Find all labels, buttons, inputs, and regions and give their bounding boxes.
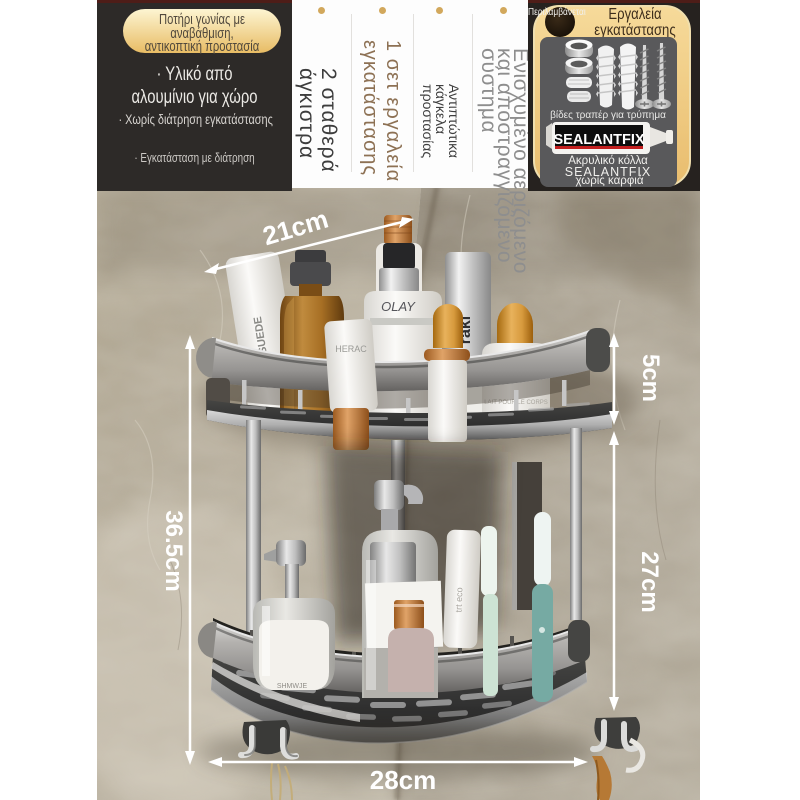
svg-text:trt eco: trt eco — [454, 587, 465, 612]
svg-text:28cm: 28cm — [370, 765, 437, 795]
svg-text:SEALANTFIX: SEALANTFIX — [553, 132, 644, 148]
svg-text:HERAC: HERAC — [335, 344, 367, 354]
svg-text:36.5cm: 36.5cm — [160, 510, 187, 591]
svg-text:OLAY: OLAY — [381, 299, 416, 314]
svg-text:5cm: 5cm — [637, 354, 664, 402]
svg-text:27cm: 27cm — [636, 551, 663, 612]
svg-text:SHMWJE: SHMWJE — [277, 683, 308, 690]
svg-text:βίδες τραπέρ για τρύπημα: βίδες τραπέρ για τρύπημα — [550, 109, 666, 121]
